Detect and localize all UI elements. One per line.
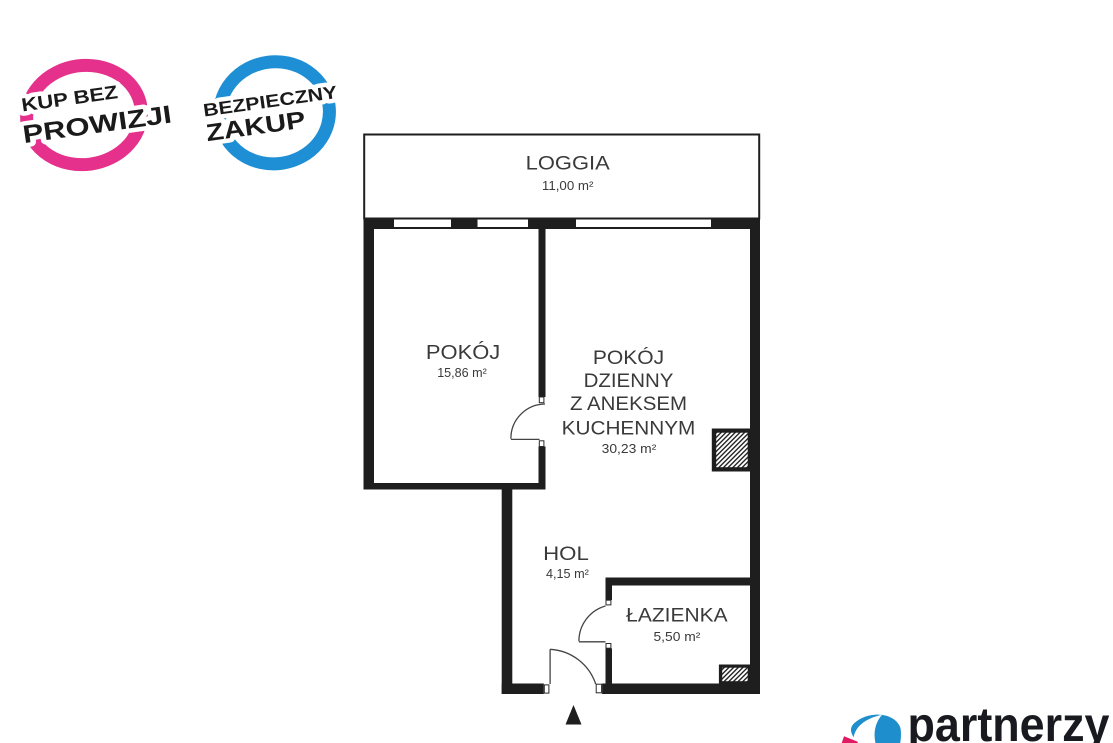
svg-text:Z ANEKSEM: Z ANEKSEM — [570, 394, 687, 415]
svg-text:partnerzy: partnerzy — [908, 699, 1110, 743]
svg-text:30,23 m²: 30,23 m² — [602, 441, 657, 456]
svg-text:LOGGIA: LOGGIA — [526, 154, 610, 175]
svg-text:KUCHENNYM: KUCHENNYM — [562, 419, 696, 440]
svg-text:POKÓJ: POKÓJ — [593, 347, 664, 369]
svg-text:ŁAZIENKA: ŁAZIENKA — [626, 606, 728, 627]
svg-text:11,00 m²: 11,00 m² — [542, 178, 594, 193]
svg-text:HOL: HOL — [543, 544, 589, 565]
svg-text:DZIENNY: DZIENNY — [584, 371, 674, 392]
svg-text:POKÓJ: POKÓJ — [426, 341, 500, 364]
svg-text:5,50 m²: 5,50 m² — [654, 629, 702, 644]
svg-text:4,15 m²: 4,15 m² — [546, 566, 590, 581]
svg-text:15,86 m²: 15,86 m² — [437, 365, 487, 380]
